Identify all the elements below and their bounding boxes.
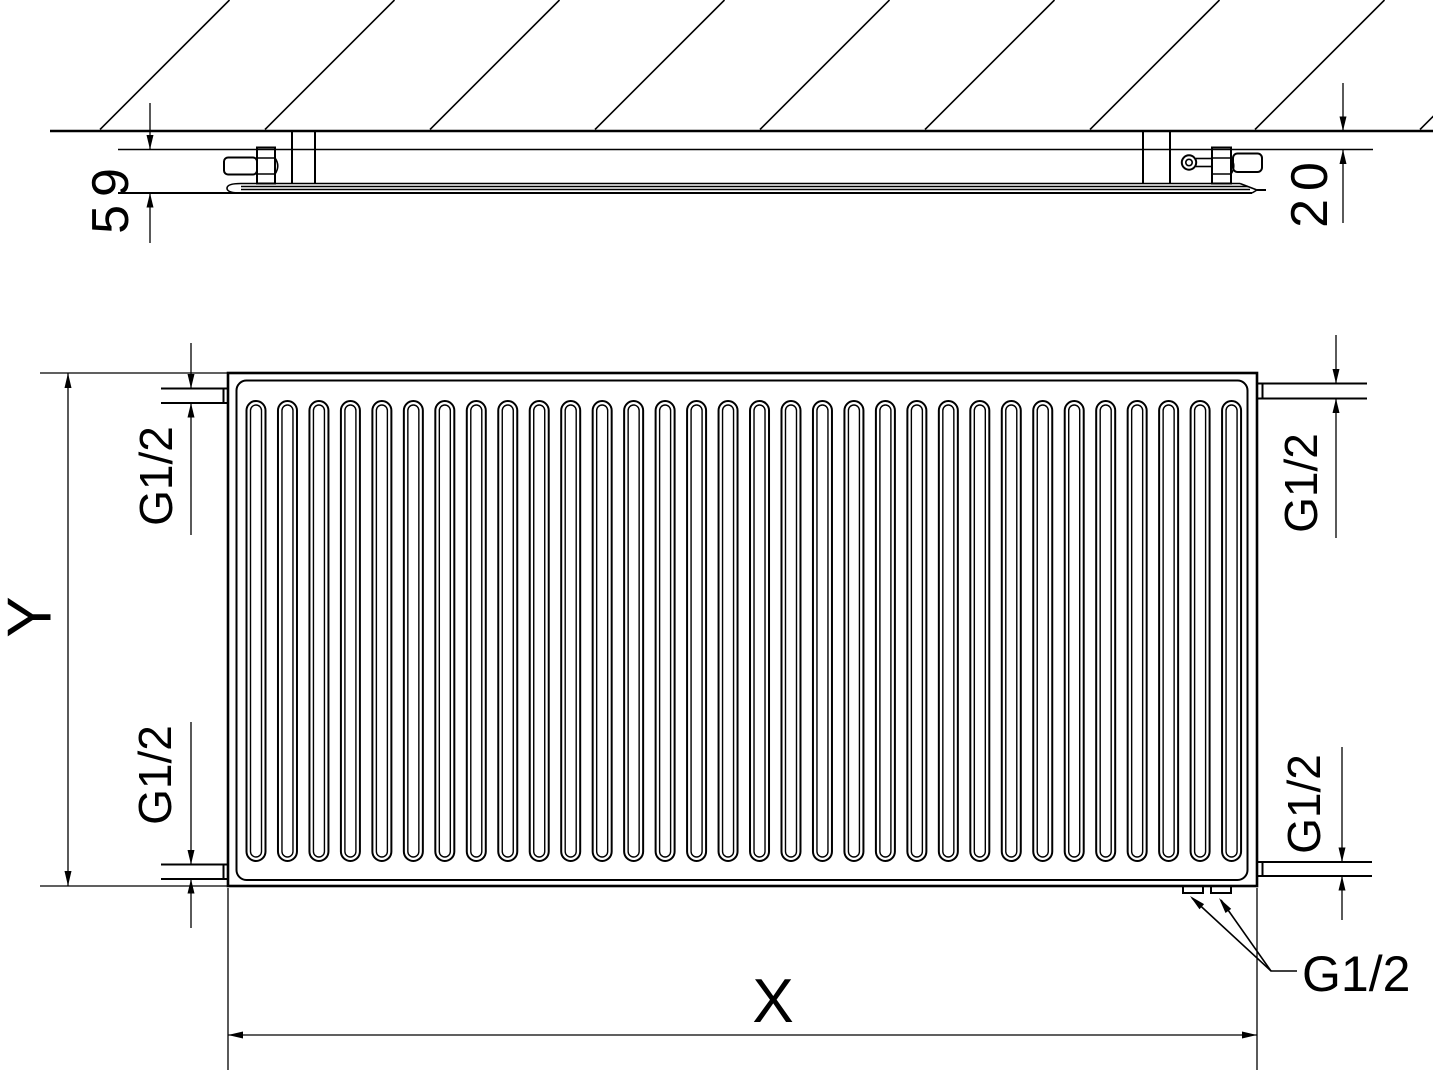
wall-hatch [100, 0, 1433, 130]
wall-bracket-right [1143, 132, 1170, 184]
arrowhead-up [1340, 150, 1347, 165]
dimension-depth-59: 59 [82, 103, 154, 243]
arrowhead-down [1333, 369, 1340, 384]
dimension-wall-20: 20 [1281, 83, 1347, 228]
arrowhead-down [1340, 117, 1347, 132]
corrugation-slots [247, 401, 1242, 861]
connection-stub-top-left [161, 389, 228, 404]
arrowhead-up [1339, 876, 1346, 891]
label-height-y: Y [0, 596, 65, 637]
arrowhead-down [65, 871, 72, 886]
arrowhead-up [65, 373, 72, 388]
label-thread-bottom-connections: G1/2 [1302, 946, 1410, 1002]
callout-bottom-threads: G1/2 [1190, 896, 1410, 1002]
dimension-thread-bottom-left: G1/2 [129, 722, 195, 928]
arrowhead-left [228, 1032, 243, 1039]
label-wall-20: 20 [1281, 154, 1339, 228]
connection-stub-bottom-right [1257, 862, 1372, 876]
label-depth-59: 59 [82, 160, 140, 234]
radiator-outer-body [228, 373, 1257, 886]
arrowhead-down [188, 374, 195, 389]
label-thread-top-right: G1/2 [1275, 433, 1327, 533]
dimension-width-x: X [228, 888, 1257, 1070]
arrowhead-down [188, 850, 195, 865]
connection-stub-top-right [1257, 384, 1367, 399]
arrowhead-right [1242, 1032, 1257, 1039]
right-vent-assembly [1182, 148, 1262, 184]
label-thread-bottom-right: G1/2 [1278, 754, 1330, 854]
left-plug-assembly [224, 148, 278, 184]
label-thread-top-left: G1/2 [130, 426, 182, 526]
drawing-svg: 59 20 [0, 0, 1433, 1073]
arrowhead-down [147, 135, 154, 150]
top-view: 59 20 [50, 0, 1433, 243]
radiator-panel-section [118, 184, 1266, 194]
dimension-thread-top-right: G1/2 [1275, 335, 1340, 538]
label-thread-bottom-left: G1/2 [129, 725, 181, 825]
front-view: Y G1/2 G1/2 G1/2 [0, 335, 1410, 1070]
dimension-thread-top-left: G1/2 [130, 343, 195, 535]
arrowhead-down [1339, 848, 1346, 863]
arrowhead-up [1333, 399, 1340, 414]
label-width-x: X [752, 967, 793, 1036]
radiator-technical-drawing: 59 20 [0, 0, 1433, 1073]
connection-stub-bottom-left [161, 865, 228, 880]
wall-bracket-left [292, 132, 315, 184]
arrowhead-up [147, 193, 154, 208]
dimension-height-y: Y [0, 373, 72, 886]
arrowhead-up [188, 403, 195, 418]
dimension-thread-bottom-right: G1/2 [1278, 747, 1346, 920]
